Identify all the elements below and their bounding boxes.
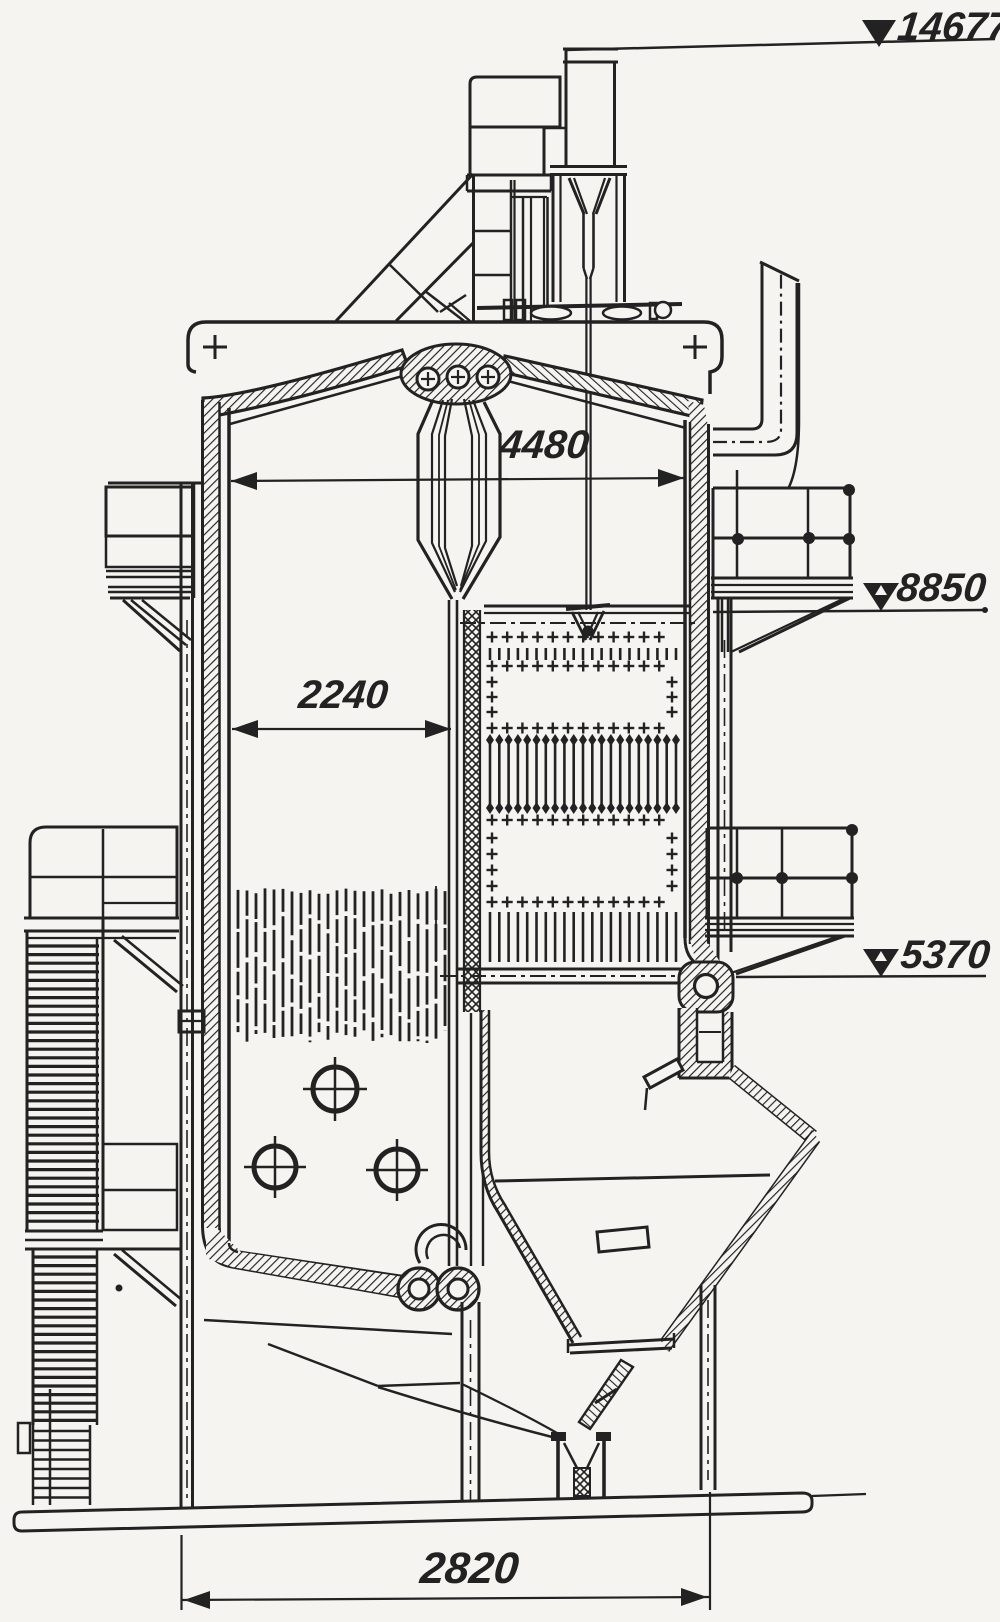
svg-text:14677: 14677 bbox=[895, 5, 1000, 49]
svg-text:8850: 8850 bbox=[895, 566, 989, 610]
svg-text:2240: 2240 bbox=[296, 673, 391, 717]
svg-text:4480: 4480 bbox=[497, 423, 592, 467]
svg-text:2820: 2820 bbox=[417, 1544, 521, 1593]
svg-text:5370: 5370 bbox=[899, 933, 993, 977]
